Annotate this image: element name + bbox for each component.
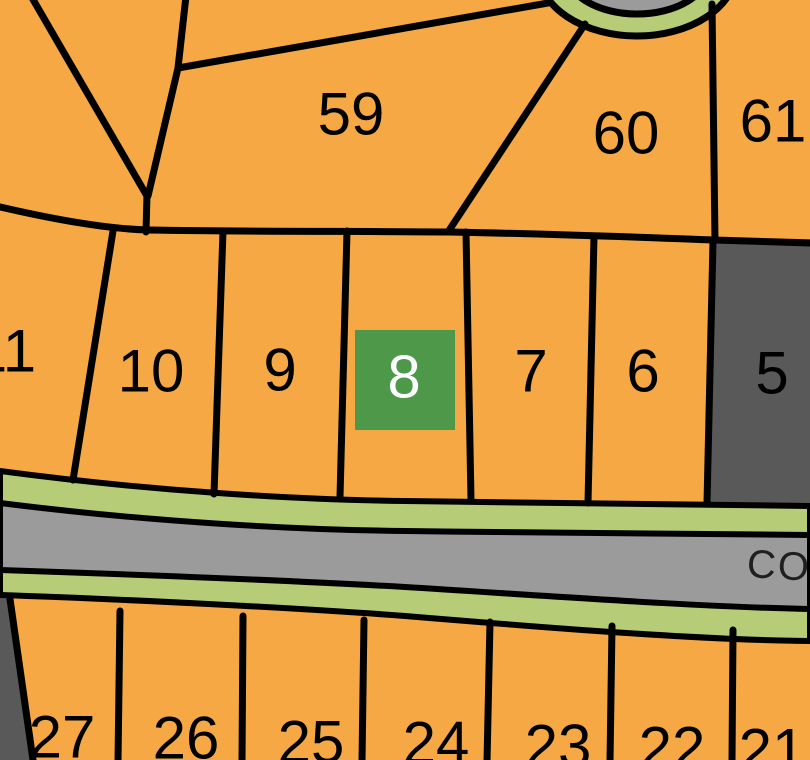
lot-23-label[interactable]: 23 bbox=[525, 713, 592, 760]
boundary-line bbox=[487, 622, 490, 760]
lot-60-label[interactable]: 60 bbox=[593, 100, 660, 167]
lot-11-label[interactable]: 11 bbox=[0, 318, 36, 385]
lot-9-label[interactable]: 9 bbox=[263, 337, 296, 404]
lot-21-label[interactable]: 21 bbox=[739, 717, 806, 760]
lot-8-label[interactable]: 8 bbox=[387, 344, 420, 411]
plat-map: 59 60 61 11 10 9 8 7 6 5 27 26 25 24 23 … bbox=[0, 0, 810, 760]
lot-7-label[interactable]: 7 bbox=[514, 338, 547, 405]
lot-6-label[interactable]: 6 bbox=[626, 338, 659, 405]
lot-59-label[interactable]: 59 bbox=[318, 81, 385, 148]
boundary-line bbox=[466, 232, 471, 500]
boundary-line bbox=[118, 611, 120, 760]
boundary-line bbox=[610, 626, 612, 760]
boundary-line bbox=[732, 630, 733, 760]
lot-5-label[interactable]: 5 bbox=[755, 340, 788, 407]
boundary-line bbox=[362, 620, 364, 760]
lot-24-label[interactable]: 24 bbox=[403, 710, 470, 760]
lot-10-label[interactable]: 10 bbox=[118, 338, 185, 405]
boundary-line bbox=[242, 616, 243, 760]
plat-map-viewport: 59 60 61 11 10 9 8 7 6 5 27 26 25 24 23 … bbox=[0, 0, 810, 760]
lot-25-label[interactable]: 25 bbox=[278, 709, 345, 760]
lot-61-label[interactable]: 61 bbox=[740, 88, 807, 155]
lot-22-label[interactable]: 22 bbox=[639, 715, 706, 760]
boundary-line bbox=[712, 4, 715, 240]
road-name-label: CO bbox=[746, 542, 810, 590]
lot-27-label[interactable]: 27 bbox=[29, 704, 96, 760]
lot-26-label[interactable]: 26 bbox=[153, 705, 220, 760]
boundary-line bbox=[146, 194, 147, 232]
